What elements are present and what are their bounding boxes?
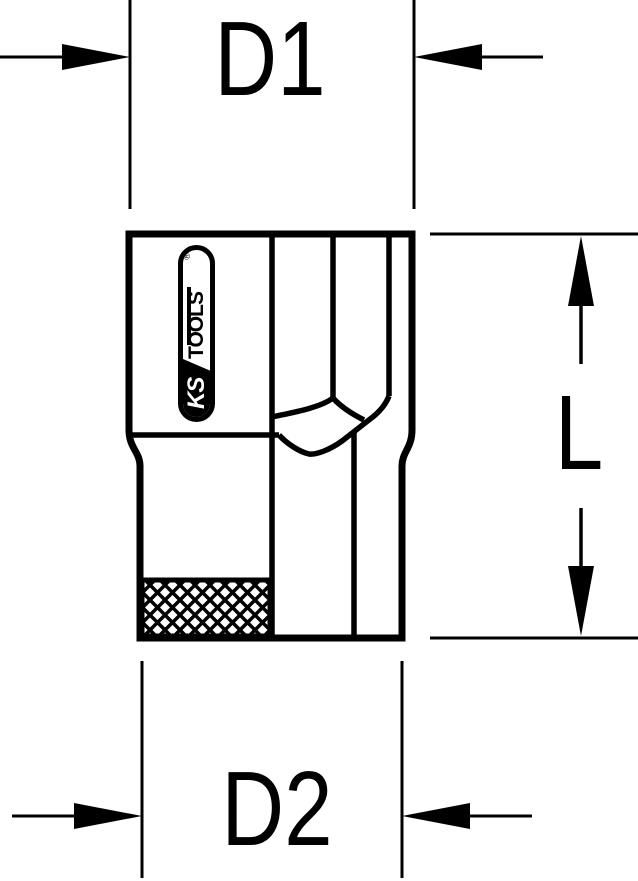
arrowhead-left-icon (402, 803, 470, 829)
logo-ks-text: KS (185, 378, 209, 417)
l-arrow-down-icon (568, 508, 594, 636)
d1-arrow-right-icon (414, 44, 543, 70)
l-arrow-up-icon (568, 236, 594, 364)
registered-trademark-icon: ® (183, 253, 192, 260)
knurling-hatch (142, 580, 270, 636)
diagram-canvas: D1 L D2 KS TOOLS ® (0, 0, 638, 881)
d1-dimension-label: D1 (188, 9, 352, 109)
logo-t-bar (187, 287, 191, 345)
length-dimension-label: L (497, 383, 638, 483)
d2-arrow-right-icon (402, 803, 532, 829)
arrowhead-right-icon (74, 803, 142, 829)
arrowhead-up-icon (568, 236, 594, 306)
d1-arrow-left-icon (0, 44, 130, 70)
d2-arrow-left-icon (12, 803, 142, 829)
logo-pill: KS TOOLS ® (178, 245, 215, 422)
arrowhead-right-icon (62, 44, 130, 70)
ks-tools-logo: KS TOOLS ® (178, 245, 215, 422)
logo-ks-segment: KS (183, 359, 210, 417)
arrowhead-left-icon (414, 44, 482, 70)
d2-dimension-label: D2 (195, 759, 359, 859)
arrowhead-down-icon (568, 566, 594, 636)
